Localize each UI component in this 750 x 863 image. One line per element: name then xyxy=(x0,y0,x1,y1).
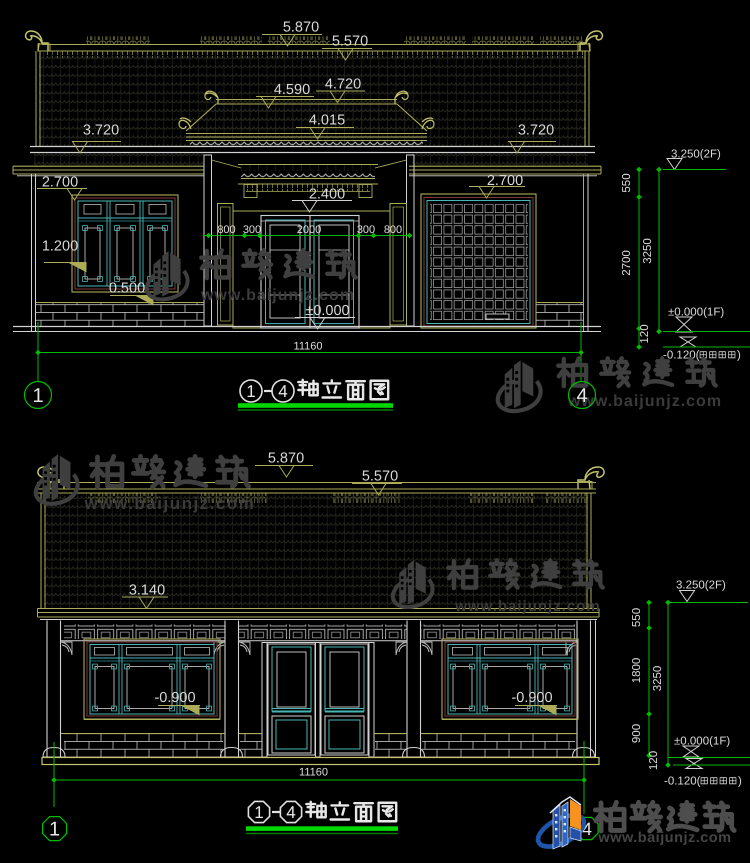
svg-text:3.140: 3.140 xyxy=(129,583,165,599)
svg-text:1: 1 xyxy=(246,382,255,401)
svg-text:120: 120 xyxy=(648,751,660,770)
svg-text:5.870: 5.870 xyxy=(268,451,304,467)
svg-text:800: 800 xyxy=(384,224,402,236)
svg-text:300: 300 xyxy=(243,224,261,236)
svg-text:3250: 3250 xyxy=(642,238,654,264)
svg-text:550: 550 xyxy=(631,608,643,627)
svg-text:www.baijunjz.com: www.baijunjz.com xyxy=(567,393,722,410)
svg-text:4: 4 xyxy=(576,385,587,407)
svg-text:1: 1 xyxy=(254,803,263,822)
svg-text:3.720: 3.720 xyxy=(518,123,554,139)
svg-text:4.720: 4.720 xyxy=(325,77,361,93)
svg-text:3.250(2F): 3.250(2F) xyxy=(676,580,726,592)
svg-text:2000: 2000 xyxy=(297,224,321,236)
svg-text:1: 1 xyxy=(32,385,43,407)
svg-text:2700: 2700 xyxy=(621,250,633,276)
svg-text:3.720: 3.720 xyxy=(83,123,119,139)
svg-text:300: 300 xyxy=(357,224,375,236)
svg-text:4.015: 4.015 xyxy=(309,113,345,129)
svg-text:4: 4 xyxy=(286,803,295,822)
svg-text:0.500: 0.500 xyxy=(109,281,145,297)
svg-text:120: 120 xyxy=(639,324,651,343)
svg-text:1: 1 xyxy=(49,819,60,841)
svg-text:4.590: 4.590 xyxy=(274,82,310,98)
svg-text:5.570: 5.570 xyxy=(362,469,398,485)
svg-text:550: 550 xyxy=(621,173,633,192)
svg-text:900: 900 xyxy=(631,724,643,743)
svg-text:3250: 3250 xyxy=(652,666,664,692)
svg-text:www.baijunjz.com: www.baijunjz.com xyxy=(200,287,355,304)
svg-text:800: 800 xyxy=(217,224,235,236)
svg-text:www.baijunjz.com: www.baijunjz.com xyxy=(597,830,731,846)
svg-text:11160: 11160 xyxy=(294,341,323,353)
svg-text:-0.120(: -0.120( xyxy=(664,776,701,788)
svg-text:±0.000: ±0.000 xyxy=(305,303,349,319)
svg-text:11160: 11160 xyxy=(299,767,328,779)
svg-text:4: 4 xyxy=(278,382,287,401)
svg-text:1800: 1800 xyxy=(631,658,643,684)
svg-text:): ) xyxy=(738,776,742,788)
svg-text:5.570: 5.570 xyxy=(332,34,368,50)
svg-text:5.870: 5.870 xyxy=(283,20,319,36)
svg-text:www.baijunjz.com: www.baijunjz.com xyxy=(84,494,256,513)
svg-text:): ) xyxy=(737,350,741,362)
svg-text:-0.900: -0.900 xyxy=(511,690,552,706)
svg-text:www.baijunjz.com: www.baijunjz.com xyxy=(454,598,600,615)
svg-text:-0.900: -0.900 xyxy=(154,690,195,706)
svg-text:1.200: 1.200 xyxy=(42,239,78,255)
